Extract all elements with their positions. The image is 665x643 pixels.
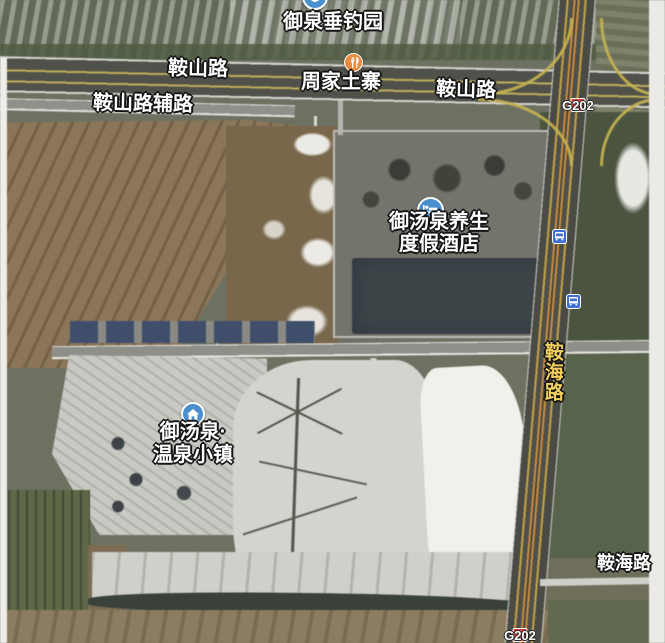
road-label-anshan-right: 鞍山路: [436, 78, 497, 102]
town-name-line1: 御汤泉·: [147, 421, 239, 444]
page-edge-left: [0, 58, 7, 643]
bottom-fields: [0, 610, 560, 643]
road-label-anhai-vertical: 鞍海路: [541, 342, 562, 402]
blue-roof-buildings: [70, 321, 315, 343]
bus-stop-icon-2[interactable]: [566, 294, 581, 309]
hotel-name-line1: 御汤泉养生: [383, 211, 495, 233]
bus-glyph: [569, 297, 578, 306]
poi-label-hotel[interactable]: 御汤泉养生 度假酒店: [383, 211, 495, 255]
bus-stop-icon-1[interactable]: [552, 229, 567, 244]
g202-badge-bottom-text: G202: [504, 628, 536, 643]
hotel-name-line2: 度假酒店: [383, 233, 495, 255]
poi-label-village[interactable]: 周家土寨: [301, 71, 381, 93]
poi-label-fishing-park[interactable]: 御泉垂钓园: [283, 11, 383, 33]
satellite-map[interactable]: 御泉垂钓园 周家土寨 鞍山路 鞍山路辅路 鞍山路 G202 御汤泉养生 度假酒店…: [0, 0, 665, 643]
page-edge-right: [649, 0, 665, 643]
fishing-park-glyph: [310, 0, 320, 2]
g202-badge-top: G202: [556, 97, 600, 113]
town-name-line2: 温泉小镇: [147, 444, 239, 467]
g202-badge-bottom: G202: [498, 627, 542, 643]
bottom-green: [548, 600, 652, 643]
poi-label-town[interactable]: 御汤泉· 温泉小镇: [147, 421, 239, 467]
road-label-anhai-bottom: 鞍海路: [597, 554, 651, 574]
g202-badge-top-text: G202: [562, 98, 594, 113]
house-glyph: [187, 409, 199, 420]
restaurant-icon[interactable]: [344, 53, 363, 72]
hotel-pond: [352, 258, 552, 334]
road-label-anshan-left: 鞍山路: [168, 57, 228, 80]
road-label-anshan-service: 鞍山路辅路: [93, 92, 193, 116]
fork-knife-glyph: [349, 57, 359, 68]
bus-glyph: [555, 232, 564, 241]
